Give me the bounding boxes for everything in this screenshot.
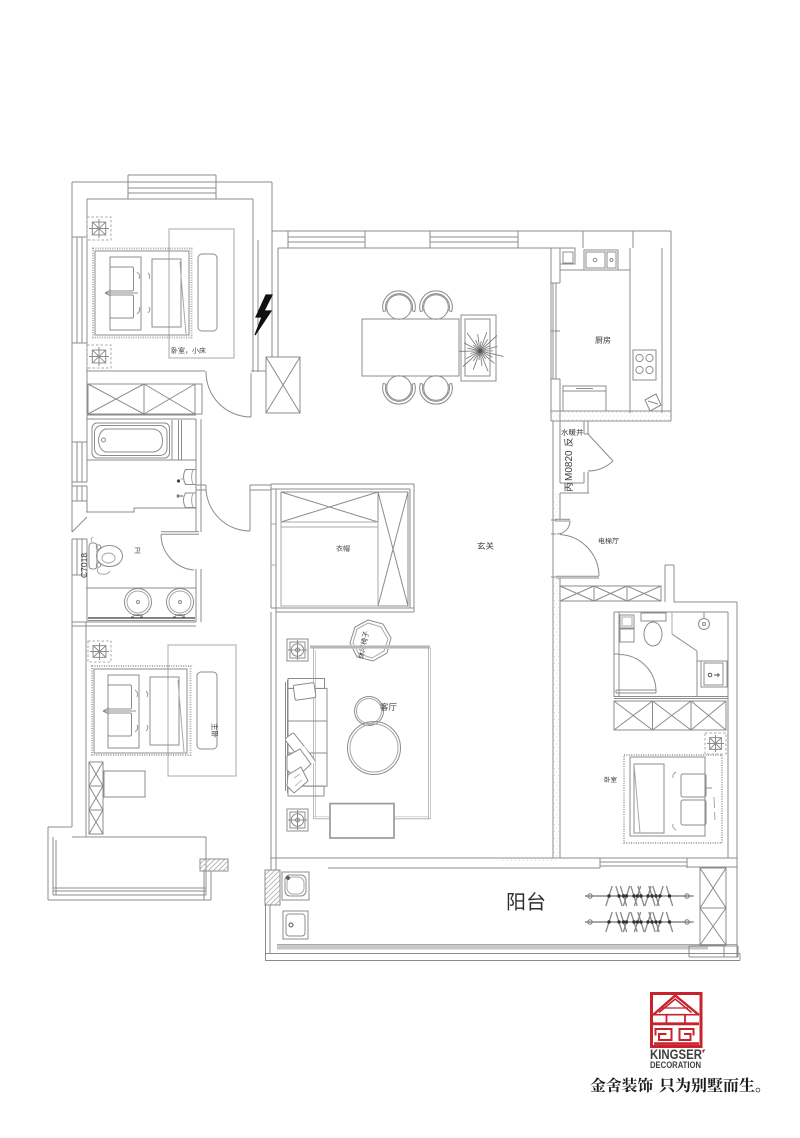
svg-text:M0820: M0820 [564,450,575,481]
svg-text:DECORATION: DECORATION [650,1060,701,1070]
svg-text:C7018: C7018 [79,553,89,578]
